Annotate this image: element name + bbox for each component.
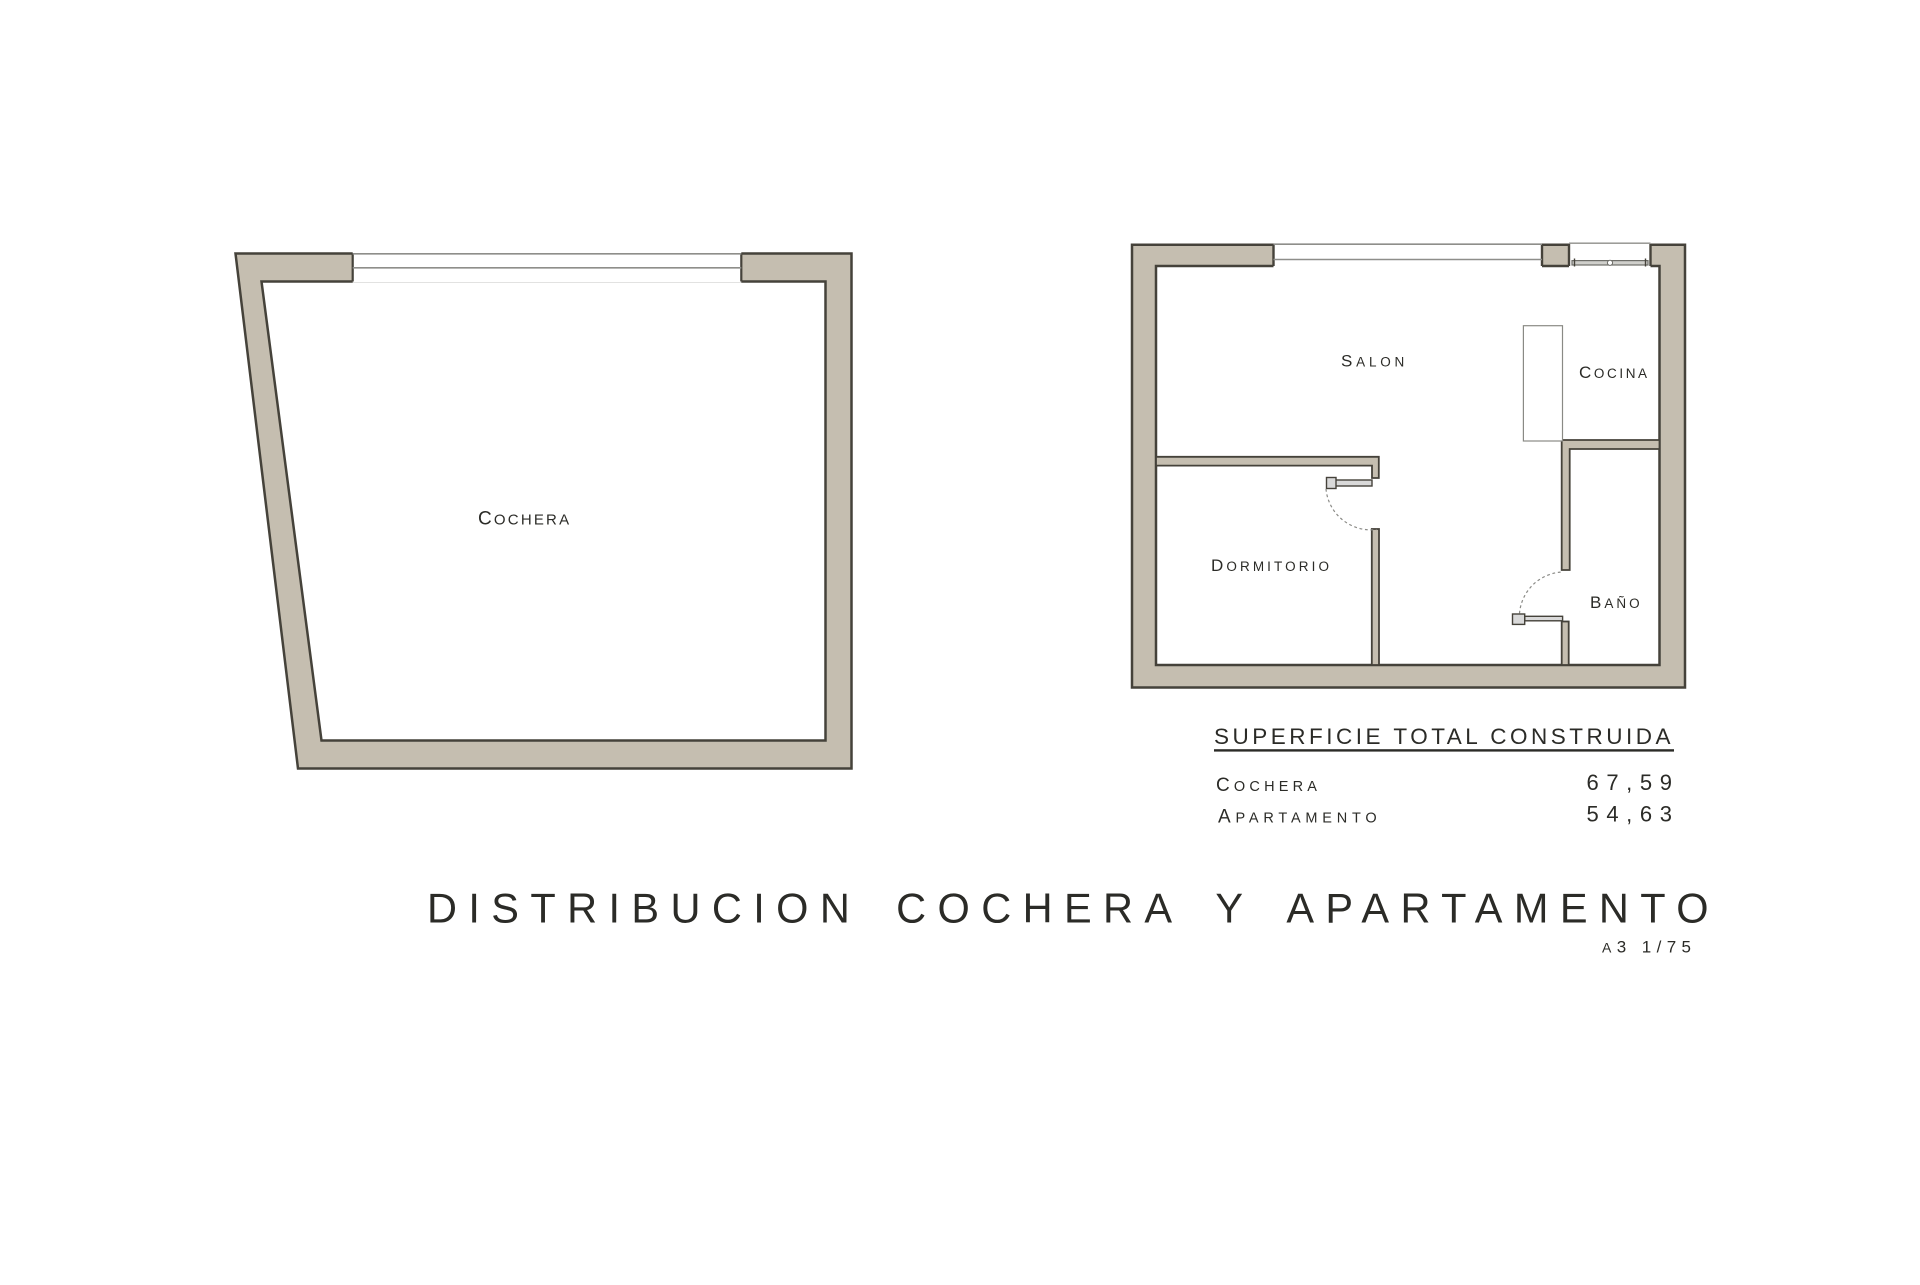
svg-text:SALON: SALON xyxy=(1341,351,1408,370)
svg-text:54,63: 54,63 xyxy=(1587,802,1680,827)
svg-text:DORMITORIO: DORMITORIO xyxy=(1211,556,1332,575)
svg-text:COCHERA: COCHERA xyxy=(478,509,571,530)
svg-text:APARTAMENTO: APARTAMENTO xyxy=(1218,807,1382,828)
svg-text:COCINA: COCINA xyxy=(1579,363,1650,382)
svg-text:DISTRIBUCION COCHERA Y APARTAM: DISTRIBUCION COCHERA Y APARTAMENTO xyxy=(427,885,1720,932)
svg-text:COCHERA: COCHERA xyxy=(1216,775,1321,796)
svg-text:67,59: 67,59 xyxy=(1587,770,1680,795)
svg-text:SUPERFICIE TOTAL CONSTRUIDA: SUPERFICIE TOTAL CONSTRUIDA xyxy=(1214,724,1674,749)
svg-text:BAÑO: BAÑO xyxy=(1590,593,1643,612)
svg-text:A3 1/75: A3 1/75 xyxy=(1602,938,1696,957)
